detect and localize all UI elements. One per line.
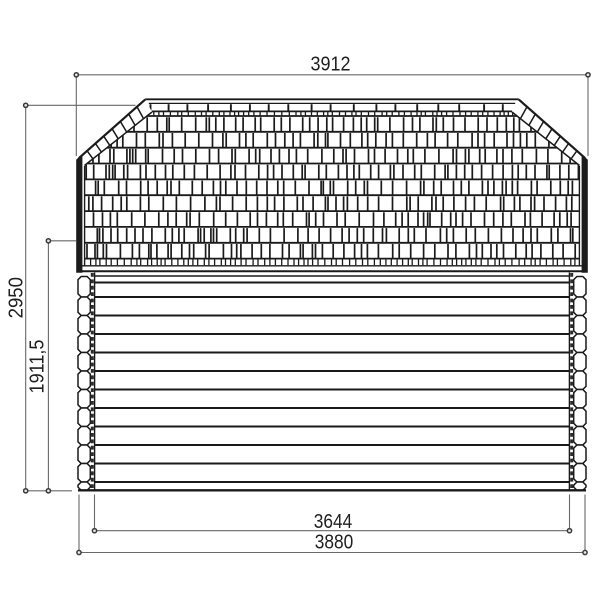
svg-text:3912: 3912 (311, 53, 351, 75)
svg-text:3644: 3644 (314, 511, 353, 533)
svg-text:2950: 2950 (5, 277, 27, 318)
svg-text:1911,5: 1911,5 (26, 340, 48, 394)
svg-text:3880: 3880 (315, 532, 354, 554)
